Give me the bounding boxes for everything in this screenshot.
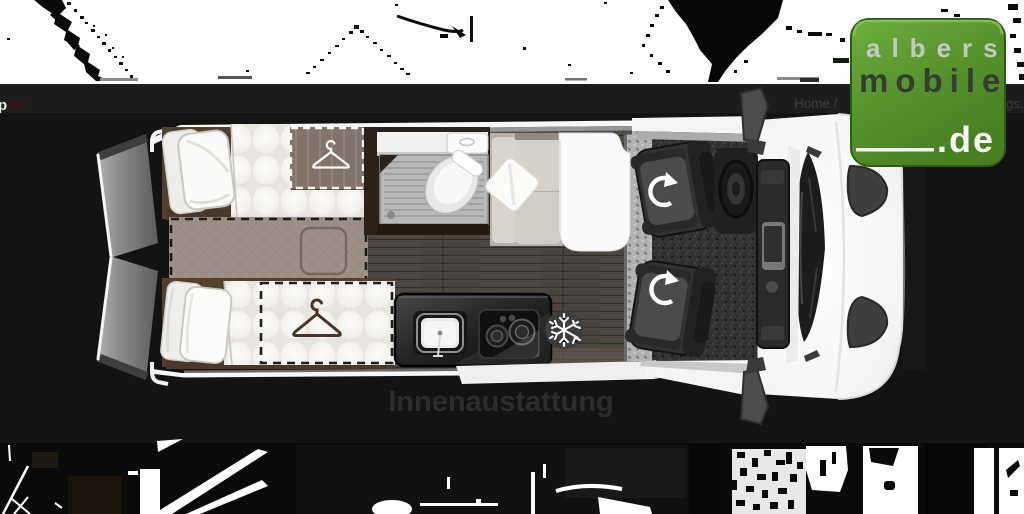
svg-text:Innenaustattung: Innenaustattung	[388, 386, 614, 418]
svg-text:mobile: mobile	[859, 62, 1007, 99]
svg-text:port: port	[0, 97, 27, 114]
svg-text:.de: .de	[937, 119, 995, 160]
svg-text:albers: albers	[866, 33, 1009, 63]
svg-text:gs...: gs...	[1006, 96, 1024, 111]
svg-text:Home /: Home /	[794, 96, 838, 111]
